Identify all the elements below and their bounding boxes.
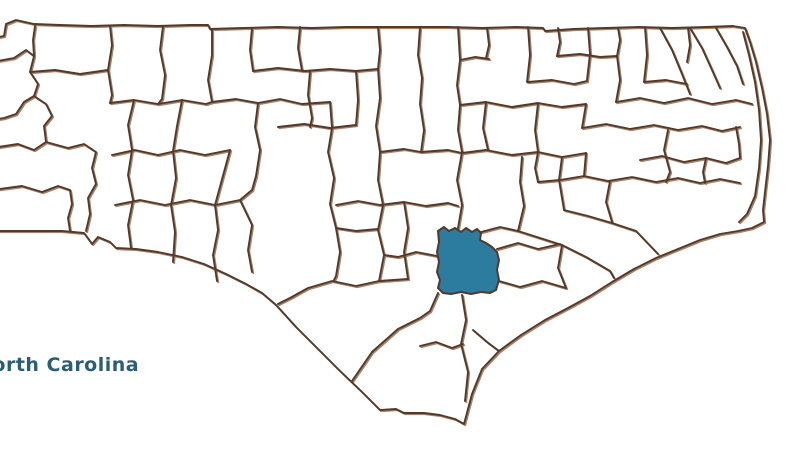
north-carolina-county-map: North Carolina	[0, 0, 800, 450]
state-label: North Carolina	[0, 354, 139, 376]
highlighted-county[interactable]	[437, 227, 499, 294]
highlighted-county-group	[437, 227, 499, 294]
map-canvas: North Carolina	[0, 0, 800, 450]
